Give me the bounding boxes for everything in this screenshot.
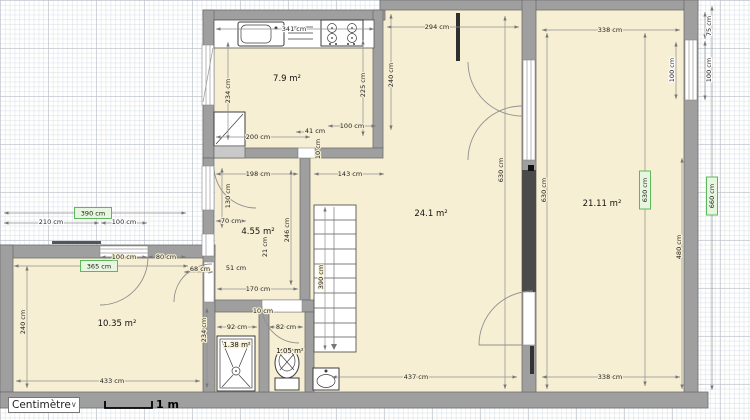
dim-terrace-total-highlighted[interactable]: 390 cm [81, 210, 105, 218]
room-label-kitchen: 7.9 m² [273, 74, 301, 84]
dim-kitchen-left-height[interactable]: 234 cm [224, 79, 232, 103]
dim-terrace-window[interactable]: 100 cm [112, 218, 136, 226]
dim-window-right-outer[interactable]: 100 cm [705, 58, 713, 82]
dim-wc-width[interactable]: 82 cm [276, 323, 296, 331]
door-living-bottom[interactable] [523, 292, 535, 345]
dim-bath-left-height[interactable]: 234 cm [200, 318, 208, 342]
wall-segment[interactable] [300, 158, 310, 300]
window-right[interactable] [685, 40, 697, 100]
selected-wall-edge [530, 346, 534, 374]
dim-hall-small-a[interactable]: 21 cm [261, 237, 269, 257]
stove-icon[interactable] [321, 20, 363, 46]
dim-bedroom-left-height[interactable]: 240 cm [19, 310, 27, 334]
double-door-living[interactable] [523, 60, 535, 160]
dim-hall-height[interactable]: 246 cm [283, 218, 291, 242]
room-label-bedroom-left: 10.35 m² [98, 319, 137, 329]
selection-handle[interactable] [528, 165, 534, 171]
radiator-icon[interactable] [456, 13, 460, 61]
dim-kitchen-opening[interactable]: 100 cm [340, 122, 364, 130]
dim-kitchen-door[interactable]: 41 cm [305, 127, 325, 135]
dim-terrace-left[interactable]: 210 cm [39, 218, 63, 226]
wall-segment[interactable] [0, 392, 708, 408]
dim-bedroom-inner-height[interactable]: 480 cm [675, 235, 683, 259]
dim-hall-door-height[interactable]: 130 cm [224, 184, 232, 208]
floor-plan: 341 cm 294 cm 338 cm 200 cm 41 cm 100 cm… [0, 0, 750, 420]
dim-kitchen-right-height[interactable]: 225 cm [359, 73, 367, 97]
wall-segment[interactable] [259, 312, 269, 392]
dim-hall-top-width[interactable]: 198 cm [246, 170, 270, 178]
washbasin-icon[interactable] [313, 368, 339, 390]
dim-window-right-offset[interactable]: 75 cm [705, 16, 713, 36]
sill-line [52, 241, 101, 244]
wall-segment[interactable] [380, 0, 698, 10]
floor-plan-canvas[interactable]: 341 cm 294 cm 338 cm 200 cm 41 cm 100 cm… [0, 0, 750, 420]
units-label: Centimètre [12, 398, 71, 412]
window-hall-left-2[interactable] [202, 234, 214, 256]
dim-kitchen-outer-height[interactable]: 240 cm [387, 63, 395, 87]
dim-bedroom-left-bottom[interactable]: 433 cm [100, 377, 124, 385]
dim-stair-hall-width[interactable]: 143 cm [338, 170, 362, 178]
door-kitchen[interactable] [298, 148, 315, 158]
room-label-wc: 1.05 m² [276, 347, 304, 355]
units-selector[interactable]: Centimètre ∨ [8, 397, 80, 413]
room-label-bedroom-right: 21.11 m² [583, 199, 622, 209]
dim-stairs-length[interactable]: 390 cm [317, 265, 325, 289]
dim-kitchen-bottom[interactable]: 200 cm [246, 133, 270, 141]
dim-bedroom-top-width[interactable]: 338 cm [598, 26, 622, 34]
dim-left-door-width[interactable]: 100 cm [112, 253, 136, 261]
dim-bedroom-height-left[interactable]: 630 cm [540, 178, 548, 202]
dim-side-door-width[interactable]: 68 cm [190, 265, 210, 273]
dim-left-door-offset[interactable]: 80 cm [156, 253, 176, 261]
wall-segment[interactable] [0, 245, 13, 392]
dim-bedroom-bottom[interactable]: 338 cm [598, 373, 622, 381]
window-hall-left[interactable] [202, 166, 214, 210]
wall-segment[interactable] [315, 148, 383, 158]
dim-bedroom-height-right-highlighted[interactable]: 630 cm [641, 178, 649, 202]
dim-kitchen-wall-thickness[interactable]: 10 cm [314, 139, 322, 159]
dim-window-right-inner[interactable]: 100 cm [668, 58, 676, 82]
room-living-floor[interactable] [383, 10, 522, 392]
selected-wall[interactable] [522, 170, 536, 292]
dim-hall-small-b[interactable]: 51 cm [226, 264, 246, 272]
dim-living-bottom[interactable]: 437 cm [404, 373, 428, 381]
dim-shower-room-width[interactable]: 92 cm [227, 323, 247, 331]
dim-kitchen-width[interactable]: 341 cm [282, 25, 306, 33]
counter-appliance-icon[interactable] [214, 112, 245, 158]
dim-living-top-width[interactable]: 294 cm [425, 23, 449, 31]
chevron-down-icon: ∨ [71, 398, 77, 412]
room-label-hall: 4.55 m² [241, 227, 274, 237]
wall-segment[interactable] [203, 10, 385, 20]
room-label-living: 24.1 m² [414, 209, 447, 219]
scale-label: 1 m [156, 398, 179, 411]
room-label-shower: 1.38 m² [223, 341, 251, 349]
dim-hall-bottom-width[interactable]: 170 cm [246, 285, 270, 293]
dim-bath-wall-thickness[interactable]: 10 cm [253, 307, 273, 315]
dim-outer-height-right-highlighted[interactable]: 660 cm [708, 184, 716, 208]
dim-hall-door-width[interactable]: 70 cm [221, 217, 241, 225]
dim-living-height-left[interactable]: 630 cm [497, 158, 505, 182]
dim-bedroom-left-top-highlighted[interactable]: 365 cm [87, 263, 111, 271]
wall-segment[interactable] [373, 10, 383, 148]
